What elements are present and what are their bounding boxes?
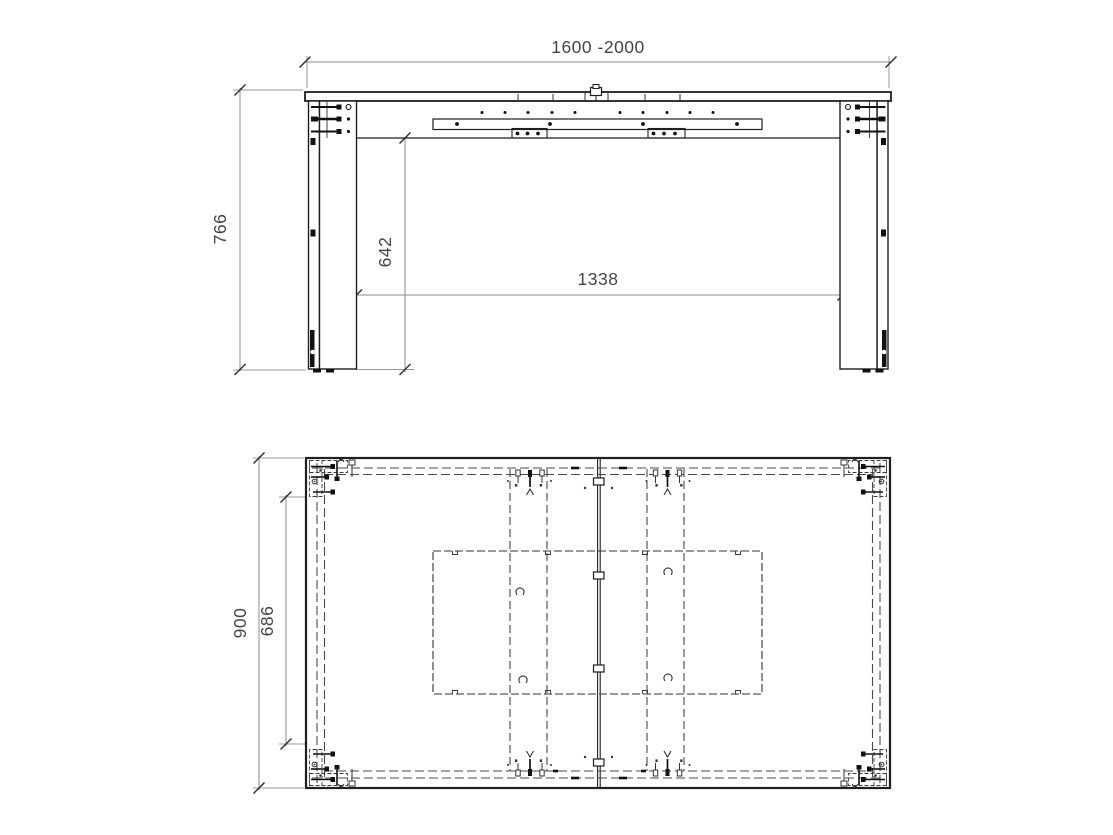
dim-label-clearance: 642 xyxy=(375,237,395,268)
dim-inner-depth: 686 xyxy=(257,492,311,750)
dim-label-overall-height: 766 xyxy=(210,214,230,245)
left-leg-elevation xyxy=(309,101,357,373)
front-elevation-view: 1600 -2000 766 642 1338 xyxy=(210,37,897,375)
plan-view: 900 686 xyxy=(230,453,890,794)
dim-width-range: 1600 -2000 xyxy=(300,37,897,88)
dim-leg-span: 1338 xyxy=(351,269,849,301)
tabletop-elevation xyxy=(305,85,891,102)
extension-rail xyxy=(433,119,762,130)
dim-label-leg-span: 1338 xyxy=(578,269,619,289)
right-leg-elevation xyxy=(840,101,888,373)
drawing-sheet: 1600 -2000 766 642 1338 xyxy=(0,0,1113,835)
dim-overall-height: 766 xyxy=(210,85,306,376)
dim-label-width-range: 1600 -2000 xyxy=(551,37,645,57)
dim-clearance: 642 xyxy=(356,133,414,376)
dim-label-overall-depth: 900 xyxy=(230,608,250,639)
dim-label-inner-depth: 686 xyxy=(257,606,277,637)
apron-elevation xyxy=(357,111,844,138)
